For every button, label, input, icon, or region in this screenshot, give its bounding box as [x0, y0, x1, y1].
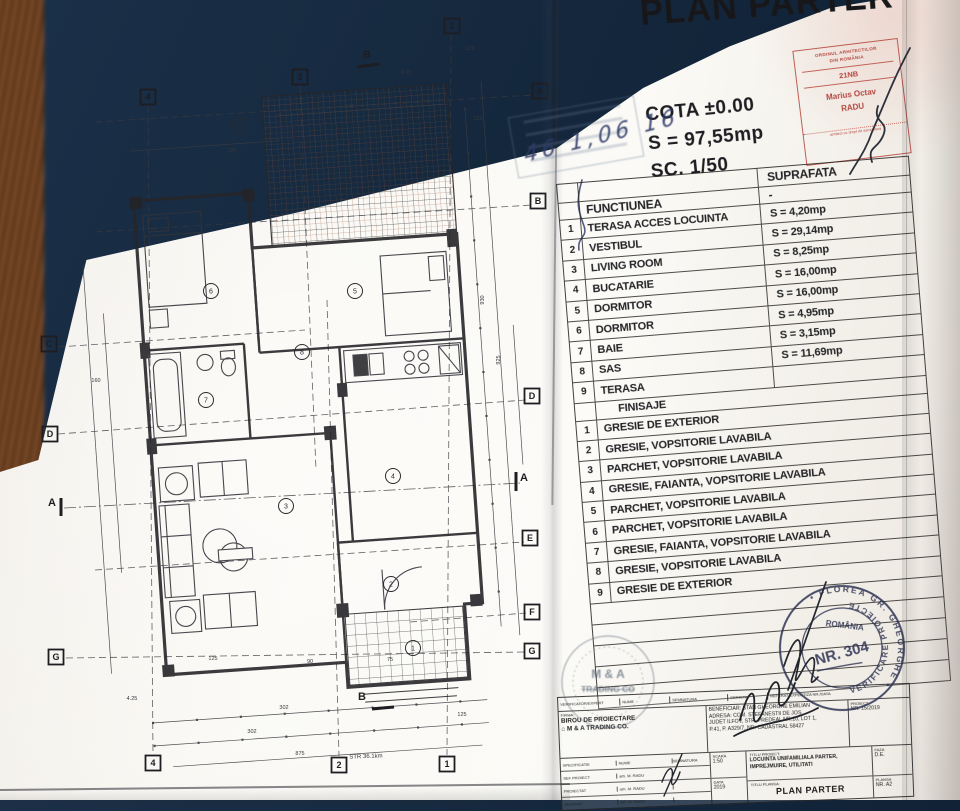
room-number-8: 8: [295, 345, 310, 360]
svg-text:4: 4: [150, 758, 155, 768]
svg-text:F: F: [529, 607, 535, 617]
svg-text:5: 5: [353, 289, 357, 296]
scale-date-cell: SCARA 1:50 DATA 2019: [710, 751, 748, 803]
svg-text:D: D: [47, 429, 54, 439]
room-number-3: 3: [279, 499, 294, 514]
axis-marker-F: F: [525, 605, 540, 620]
section-label-A: A: [520, 472, 528, 484]
titles-cell: TITLU PROIECT: LOCUINTA UNIFAMILIALA PAR…: [746, 746, 874, 802]
dimension-label: 302: [247, 729, 256, 735]
axis-marker-1: 1: [440, 757, 455, 772]
street-label: STR 36.1km: [349, 753, 383, 760]
svg-text:2: 2: [389, 582, 393, 589]
svg-text:4: 4: [145, 92, 150, 102]
dimension-label: 75: [387, 657, 393, 663]
section-label-B: B: [363, 49, 371, 61]
axis-marker-D: D: [43, 427, 58, 442]
room-number-2: 2: [384, 577, 399, 592]
axis-marker-4: 4: [146, 756, 161, 771]
floor-plan-drawing: 431ABDEFGCDG421BBAA9657843211234.0512528…: [0, 0, 560, 800]
svg-text:C: C: [46, 339, 53, 349]
section-label-B: B: [358, 691, 366, 703]
dimension-label: 925: [496, 355, 502, 364]
dimension-label: 4.05: [401, 70, 412, 76]
company-stamp-line1: M & A: [591, 667, 625, 681]
svg-text:3: 3: [297, 72, 302, 82]
svg-text:8: 8: [300, 350, 304, 357]
paper-fold-line: [906, 0, 907, 800]
room-number-9: 9: [233, 118, 248, 133]
svg-text:1: 1: [411, 646, 415, 653]
svg-text:G: G: [52, 652, 59, 662]
svg-text:D: D: [529, 391, 536, 401]
dimension-label: 4.25: [127, 696, 138, 702]
dimension-label: 90: [307, 659, 313, 665]
dimension-label: 125: [457, 712, 466, 718]
axis-marker-2: 2: [332, 758, 347, 773]
svg-text:6: 6: [209, 289, 213, 296]
svg-text:2: 2: [336, 760, 341, 770]
dimension-label: 285: [227, 148, 236, 154]
svg-text:3: 3: [284, 504, 288, 511]
wall-pillars: [129, 175, 486, 677]
room-number-4: 4: [386, 469, 401, 484]
svg-text:E: E: [527, 533, 533, 543]
room-number-5: 5: [348, 284, 363, 299]
axis-marker-G: G: [49, 650, 64, 665]
svg-text:7: 7: [204, 398, 208, 405]
company-round-stamp: M & A TRADING CO: [556, 630, 660, 734]
axis-marker-C: C: [42, 337, 57, 352]
signature-cartouche: [730, 650, 840, 750]
svg-text:G: G: [528, 646, 535, 656]
axis-marker-D: D: [525, 389, 540, 404]
dimension-label: 160: [91, 378, 100, 384]
axis-marker-1: 1: [445, 19, 460, 34]
dimension-label: 123: [465, 46, 474, 52]
dimension-label: 125: [473, 116, 482, 122]
svg-text:1: 1: [449, 21, 454, 31]
dimension-label: 302: [279, 705, 288, 711]
svg-text:9: 9: [238, 123, 242, 130]
axis-marker-G: G: [525, 644, 540, 659]
section-label-A: A: [48, 497, 56, 509]
dimension-label: 125: [208, 656, 217, 662]
svg-text:4: 4: [391, 474, 395, 481]
axis-marker-3: 3: [293, 70, 308, 85]
axis-marker-E: E: [523, 531, 538, 546]
svg-text:1: 1: [444, 759, 449, 769]
dimension-label: 875: [295, 751, 304, 757]
company-stamp-line2: TRADING CO: [581, 684, 635, 694]
signature-spec-rows: [652, 752, 702, 800]
dimension-label: 142: [345, 104, 354, 110]
paper-fold-right: [902, 0, 960, 800]
axis-marker-4: 4: [141, 90, 156, 105]
dimension-label: 930: [480, 295, 486, 304]
furniture: [139, 194, 479, 634]
room-number-7: 7: [199, 393, 214, 408]
